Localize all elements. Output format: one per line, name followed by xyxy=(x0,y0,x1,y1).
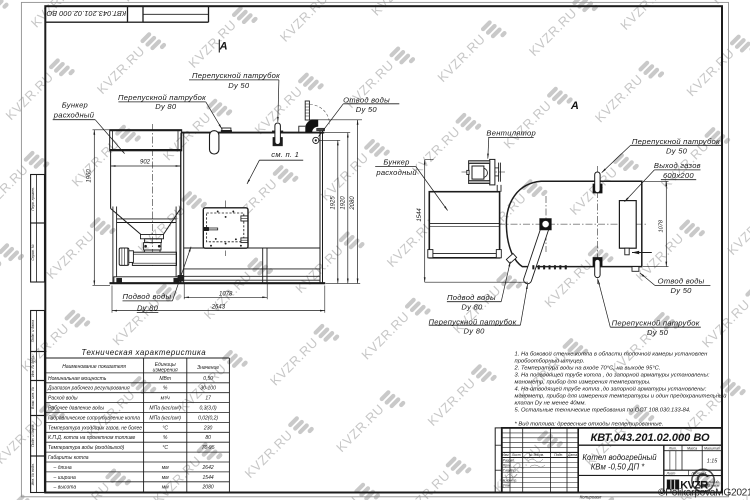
svg-text:4. На отводящей трубе котла ,: 4. На отводящей трубе котла ,до запорной… xyxy=(515,386,707,393)
svg-text:Масса: Масса xyxy=(687,446,697,450)
svg-text:Инв. № дубл.: Инв. № дубл. xyxy=(31,355,35,377)
svg-text:Копировал: Копировал xyxy=(580,495,602,500)
svg-text:Гидравлическое сопротивление к: Гидравлическое сопротивление котла xyxy=(48,415,140,421)
svg-text:Н.контр.: Н.контр. xyxy=(503,479,517,483)
svg-text:%: % xyxy=(163,435,168,441)
svg-text:Пров.: Пров. xyxy=(503,464,512,468)
svg-text:Подвод воды: Подвод воды xyxy=(447,293,496,302)
svg-text:1544: 1544 xyxy=(203,475,214,481)
svg-text:* Вид топлива: древесные отх: * Вид топлива: древесные отходы пеллетир… xyxy=(515,422,664,428)
svg-text:230: 230 xyxy=(203,425,213,431)
svg-text:Дата: Дата xyxy=(567,453,577,457)
svg-text:КВТ.043.201.02.000 ВО: КВТ.043.201.02.000 ВО xyxy=(46,9,126,18)
svg-text:Перепускной патрубок: Перепускной патрубок xyxy=(118,93,206,102)
svg-text:манометр, прибор для измерения: манометр, прибор для измерения температу… xyxy=(515,393,728,400)
svg-text:Взам. инв. №: Взам. инв. № xyxy=(31,387,35,409)
svg-text:мм: мм xyxy=(162,475,169,481)
svg-text:клапан Dy не менее 40мм.: клапан Dy не менее 40мм. xyxy=(515,401,587,407)
svg-text:м³/ч: м³/ч xyxy=(161,396,170,402)
svg-text:Dy 50: Dy 50 xyxy=(356,105,378,114)
svg-text:2080: 2080 xyxy=(350,196,356,211)
svg-text:мм: мм xyxy=(162,465,169,471)
svg-text:Выход газов: Выход газов xyxy=(654,161,701,170)
svg-text:Утв.: Утв. xyxy=(503,484,511,488)
svg-text:Справ. №: Справ. № xyxy=(31,244,35,260)
svg-text:Техническая характеристика: Техническая характеристика xyxy=(81,348,206,357)
svg-text:Dy 80: Dy 80 xyxy=(464,327,486,336)
svg-text:600х200: 600х200 xyxy=(663,171,694,180)
svg-text:1078: 1078 xyxy=(659,219,665,232)
svg-text:Наименование показателя: Наименование показателя xyxy=(62,364,126,370)
svg-text:Котел водогрейный: Котел водогрейный xyxy=(582,453,657,462)
svg-text:1960: 1960 xyxy=(87,169,93,183)
svg-text:Лит.: Лит. xyxy=(668,446,677,450)
svg-text:измерения: измерения xyxy=(153,368,178,374)
svg-text:Подвод воды: Подвод воды xyxy=(122,292,171,301)
svg-text:Перепускной патрубок: Перепускной патрубок xyxy=(192,71,280,80)
svg-text:Лист: Лист xyxy=(666,472,676,476)
svg-text:К.П.Д. котла на проектном топл: К.П.Д. котла на проектном топливе xyxy=(48,435,136,441)
svg-text:80: 80 xyxy=(205,435,211,441)
svg-text:©: © xyxy=(690,462,715,500)
svg-text:расходный: расходный xyxy=(375,168,417,177)
svg-text:Габариты котла: Габариты котла xyxy=(48,455,89,461)
svg-text:Отвод воды: Отвод воды xyxy=(658,277,705,286)
svg-text:– длина: – длина xyxy=(48,465,72,471)
svg-text:Значение: Значение xyxy=(197,365,219,371)
svg-text:Подп.: Подп. xyxy=(554,453,563,457)
svg-text:Рабочее давление воды: Рабочее давление воды xyxy=(48,406,104,412)
svg-text:Перепускной патрубок: Перепускной патрубок xyxy=(612,319,700,328)
svg-text:1078: 1078 xyxy=(219,291,233,297)
svg-text:Отвод воды: Отвод воды xyxy=(343,95,390,104)
svg-text:Перв. примен.: Перв. примен. xyxy=(31,187,35,211)
svg-text:2643: 2643 xyxy=(211,305,226,311)
svg-text:Dy 50: Dy 50 xyxy=(671,286,693,295)
svg-text:1925: 1925 xyxy=(330,196,336,210)
svg-text:Бункер: Бункер xyxy=(62,101,88,110)
svg-text:– ширина: – ширина xyxy=(48,475,76,481)
svg-text:МПа (кгс/см²): МПа (кгс/см²) xyxy=(149,415,181,421)
svg-text:2080: 2080 xyxy=(202,485,214,491)
svg-text:Перепускной патрубок: Перепускной патрубок xyxy=(632,137,720,146)
svg-text:пробоотборный штуцер.: пробоотборный штуцер. xyxy=(515,358,585,365)
svg-text:5. Остальные технические треб: 5. Остальные технические требования по О… xyxy=(515,408,691,414)
svg-text:1544: 1544 xyxy=(417,208,423,222)
svg-text:70-95: 70-95 xyxy=(202,445,215,451)
svg-text:А: А xyxy=(570,100,579,112)
svg-text:Dy 80: Dy 80 xyxy=(155,102,177,111)
svg-text:Бункер: Бункер xyxy=(383,158,409,167)
svg-text:Изм.: Изм. xyxy=(502,453,509,457)
svg-text:%: % xyxy=(163,386,168,392)
svg-text:КВТ.043.201.02.000 ВО: КВТ.043.201.02.000 ВО xyxy=(590,432,710,444)
svg-text:Dy 80: Dy 80 xyxy=(461,303,483,312)
svg-text:30-100: 30-100 xyxy=(200,386,216,392)
svg-text:Инв. № подл.: Инв. № подл. xyxy=(31,463,35,485)
svg-text:Номинальная мощность: Номинальная мощность xyxy=(48,376,107,382)
svg-text:Расход воды: Расход воды xyxy=(48,396,78,402)
svg-text:№ докум.: № докум. xyxy=(529,453,544,457)
svg-text:МПа (кгс/см²): МПа (кгс/см²) xyxy=(149,406,181,412)
svg-text:902: 902 xyxy=(140,160,151,166)
svg-text:Подп. и дата: Подп. и дата xyxy=(31,320,35,343)
svg-text:А: А xyxy=(219,40,228,52)
svg-text:– высота: – высота xyxy=(48,485,76,491)
svg-text:см. п. 1: см. п. 1 xyxy=(271,150,299,159)
svg-text:Т.контр.: Т.контр. xyxy=(503,469,517,473)
svg-text:0,50: 0,50 xyxy=(203,376,213,382)
svg-text:Dy 50: Dy 50 xyxy=(228,81,250,90)
svg-text:3. На подводящей трубе котла: 3. На подводящей трубе котла , до запорн… xyxy=(515,372,710,379)
svg-text:2642: 2642 xyxy=(202,465,214,471)
svg-text:Разраб.: Разраб. xyxy=(503,459,515,463)
svg-text:Масштаб: Масштаб xyxy=(704,446,720,450)
svg-text:°С: °С xyxy=(162,425,168,431)
svg-text:Диапазон рабочего регулировани: Диапазон рабочего регулирования xyxy=(47,386,130,392)
svg-text:Температура уходящих газов, не: Температура уходящих газов, не более xyxy=(48,425,142,431)
svg-text:Лист: Лист xyxy=(511,453,521,457)
svg-text:2. Температура воды на входе: 2. Температура воды на входе 70°С, на вы… xyxy=(514,366,661,372)
svg-text:расходный: расходный xyxy=(53,111,95,120)
svg-text:0,02(0,2): 0,02(0,2) xyxy=(198,415,218,421)
svg-text:1. На боковой стенке котла в: 1. На боковой стенке котла в области топ… xyxy=(515,351,709,358)
svg-text:КВм -0,50 ДП *: КВм -0,50 ДП * xyxy=(591,462,646,471)
svg-text:1920: 1920 xyxy=(340,196,346,210)
svg-text:°С: °С xyxy=(162,445,168,451)
svg-text:Вентилятор: Вентилятор xyxy=(486,128,536,137)
svg-text:0,3(3,0): 0,3(3,0) xyxy=(199,406,217,412)
svg-text:манометр, прибор для измерения: манометр, прибор для измерения температу… xyxy=(515,380,651,386)
svg-text:МВт: МВт xyxy=(159,376,171,382)
svg-text:Температура воды (вход/выход): Температура воды (вход/выход) xyxy=(48,445,125,451)
svg-text:Dy 50: Dy 50 xyxy=(647,328,669,337)
svg-text:Dy 50: Dy 50 xyxy=(666,147,688,156)
svg-text:Dy 80: Dy 80 xyxy=(137,304,159,313)
svg-text:Подп. и дата: Подп. и дата xyxy=(31,425,35,448)
svg-text:17: 17 xyxy=(205,396,211,402)
svg-text:мм: мм xyxy=(162,485,169,491)
